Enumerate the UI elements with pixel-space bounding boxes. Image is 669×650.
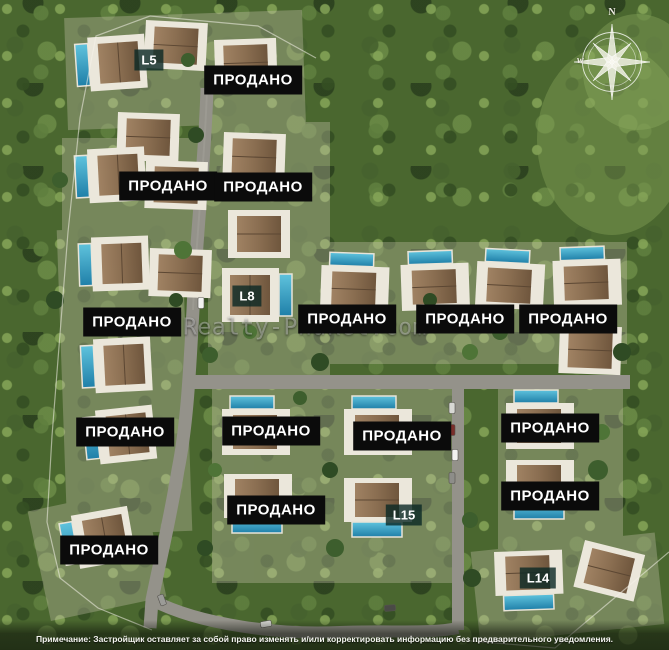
sold-badge: ПРОДАНО: [416, 305, 514, 334]
lot-badge-l14: L14: [520, 568, 556, 589]
lot-badge-l8: L8: [232, 286, 261, 307]
sold-badge: ПРОДАНО: [204, 66, 302, 95]
master-plan-image: Realty-Phuket.com N w ПРОДАНОПРОДАНОПРОД…: [0, 0, 669, 650]
sold-badge: ПРОДАНО: [214, 173, 312, 202]
sold-badge: ПРОДАНО: [227, 496, 325, 525]
sold-badge: ПРОДАНО: [76, 418, 174, 447]
sold-badge: ПРОДАНО: [519, 305, 617, 334]
footnote-text: Примечание: Застройщик оставляет за собо…: [36, 634, 613, 644]
lot-badge-l5: L5: [134, 50, 163, 71]
lot-badge-l15: L15: [386, 505, 422, 526]
sold-badge: ПРОДАНО: [501, 414, 599, 443]
compass-north-label: N: [608, 7, 615, 18]
sold-badge: ПРОДАНО: [501, 482, 599, 511]
footnote-band: Примечание: Застройщик оставляет за собо…: [0, 620, 669, 650]
sold-badge: ПРОДАНО: [353, 422, 451, 451]
sold-badge: ПРОДАНО: [222, 417, 320, 446]
sold-badge: ПРОДАНО: [119, 172, 217, 201]
sold-badge: ПРОДАНО: [60, 536, 158, 565]
sold-badge: ПРОДАНО: [83, 308, 181, 337]
compass-west-label: w: [577, 55, 584, 66]
marker-layer: Realty-Phuket.com N w ПРОДАНОПРОДАНОПРОД…: [0, 0, 669, 650]
sold-badge: ПРОДАНО: [298, 305, 396, 334]
